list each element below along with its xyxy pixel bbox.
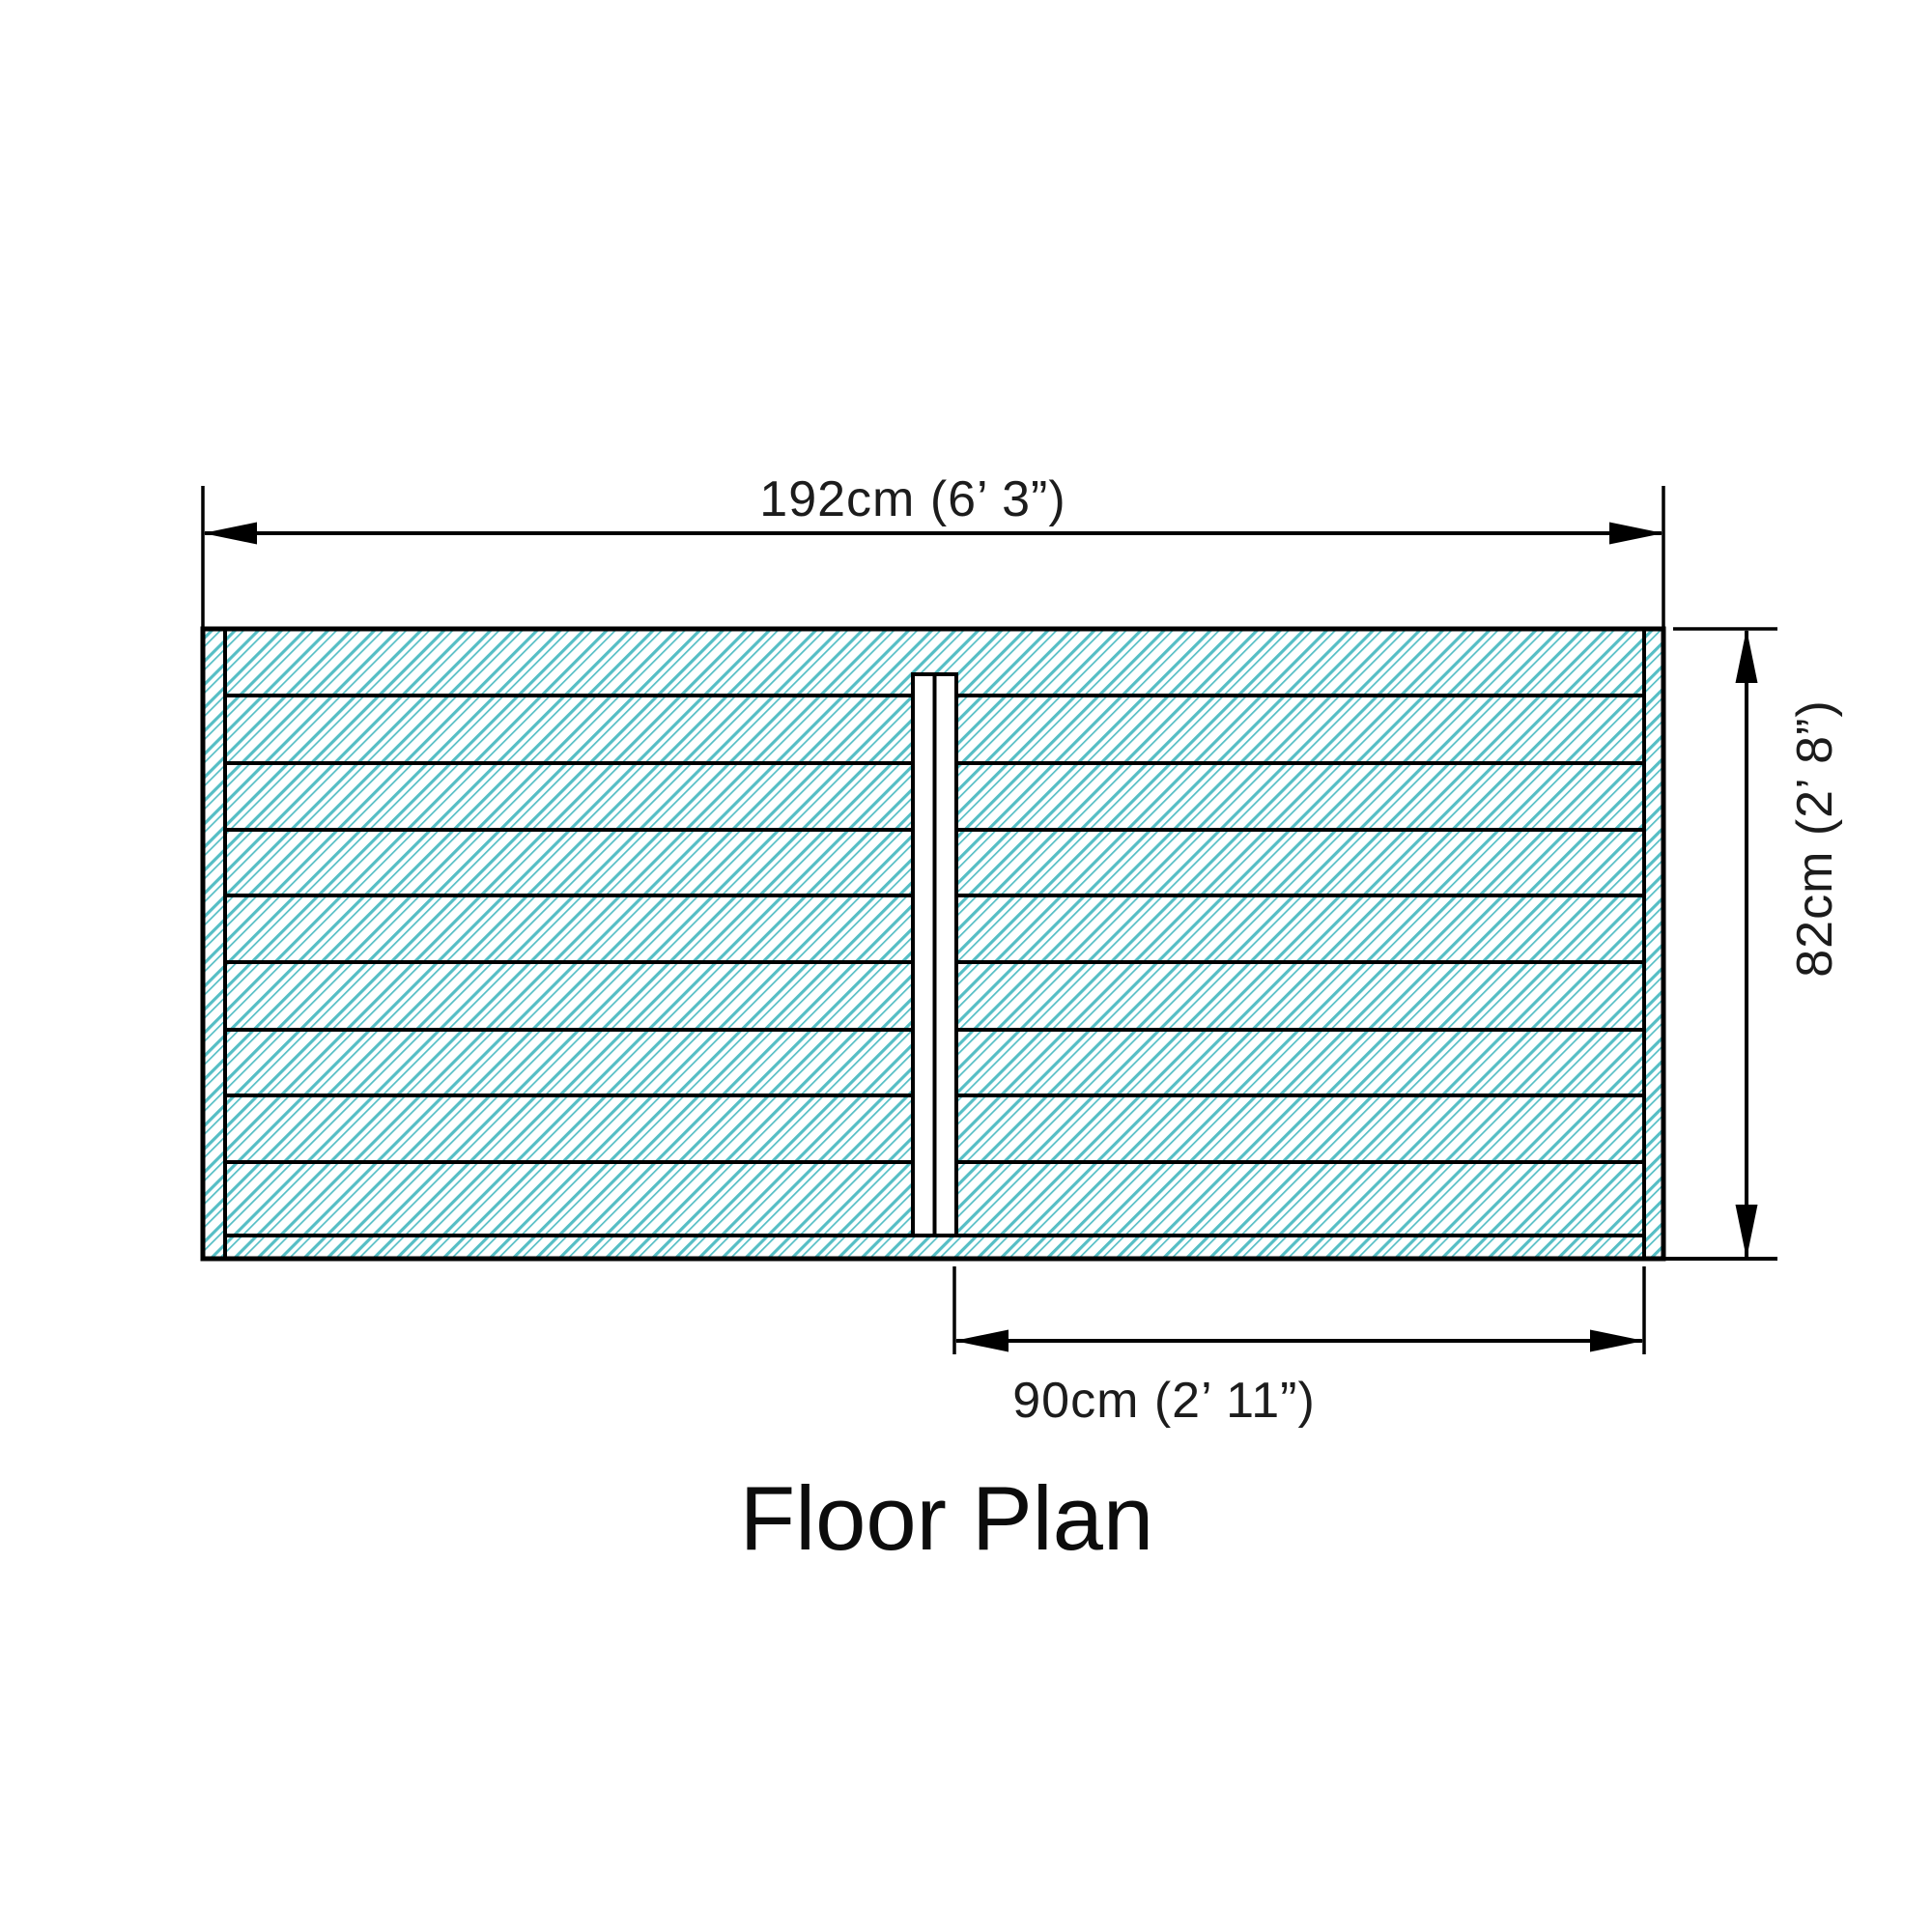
floor-plan-page: 192cm (6’ 3”) 82cm (2’ 8”) 90cm (2’ 11”)… bbox=[0, 0, 1932, 1932]
arrow-left-icon bbox=[203, 523, 257, 545]
arrow-left-icon bbox=[954, 1330, 1009, 1352]
arrow-right-icon bbox=[1590, 1330, 1644, 1352]
width-dimension: 192cm (6’ 3”) bbox=[203, 471, 1663, 629]
arrow-right-icon bbox=[1609, 523, 1663, 545]
arrow-up-icon bbox=[1736, 629, 1758, 683]
diagram-title: Floor Plan bbox=[740, 1467, 1153, 1569]
depth-dimension-label: 82cm (2’ 8”) bbox=[1787, 699, 1843, 977]
door-dimension-label: 90cm (2’ 11”) bbox=[1012, 1373, 1316, 1429]
center-divider bbox=[913, 674, 956, 1236]
floor-plan-diagram: 192cm (6’ 3”) 82cm (2’ 8”) 90cm (2’ 11”)… bbox=[0, 0, 1932, 1932]
width-dimension-label: 192cm (6’ 3”) bbox=[759, 471, 1065, 527]
arrow-down-icon bbox=[1736, 1205, 1758, 1259]
depth-dimension: 82cm (2’ 8”) bbox=[1663, 629, 1843, 1259]
door-dimension: 90cm (2’ 11”) bbox=[954, 1266, 1644, 1429]
